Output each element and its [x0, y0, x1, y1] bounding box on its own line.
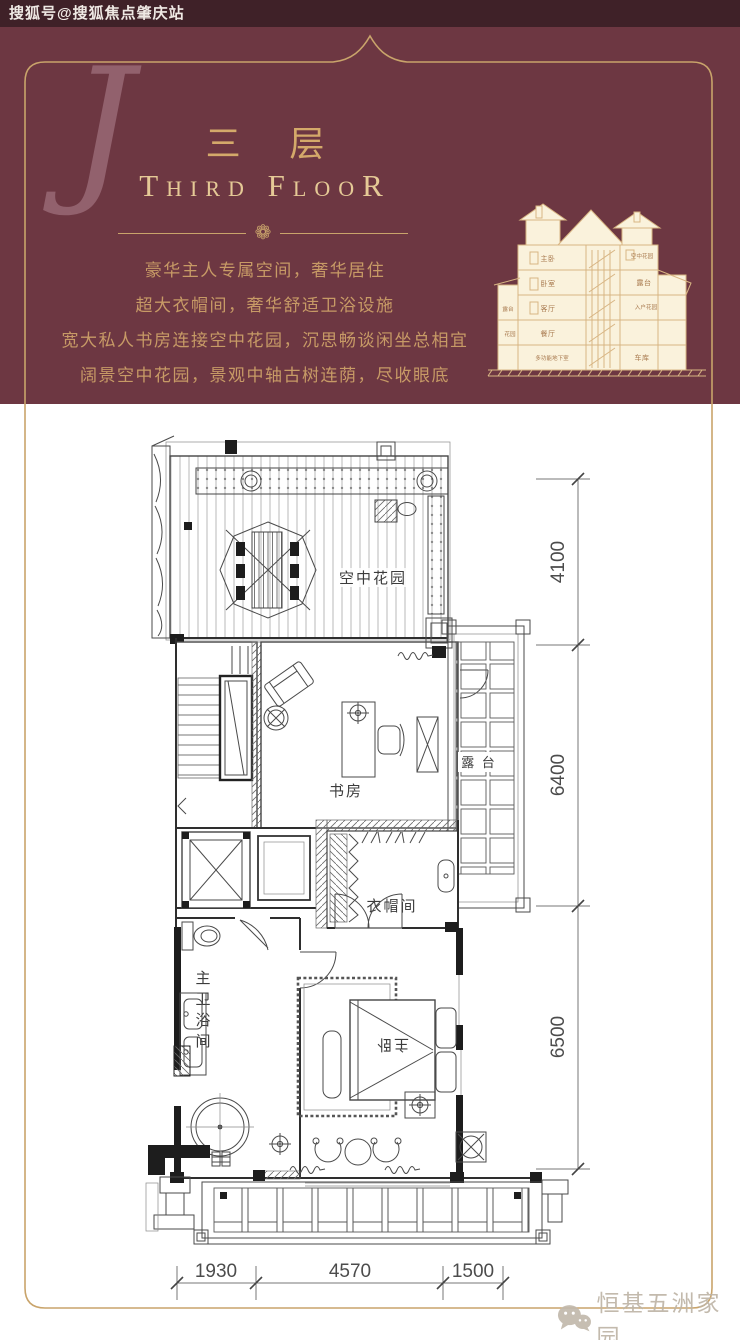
- description-line: 豪华主人专属空间，奢华居住: [28, 253, 502, 288]
- room-cloakroom: 衣帽间: [316, 820, 458, 932]
- floor-plan: 空中花园: [140, 430, 640, 1310]
- section-building: 主卧 空中花园 卧室 露台 客厅 入户花园 餐厅 多功能地下室 车库 露台 花园: [488, 204, 706, 376]
- watermark: 恒基五洲家园: [557, 1284, 740, 1340]
- flower-ornament-icon: ❁: [255, 223, 272, 243]
- section-label-entry-garden: 入户花园: [635, 303, 658, 311]
- bath-door: [240, 920, 268, 950]
- dim-6400: 6400: [548, 754, 569, 796]
- room-master-bath: 主卫浴间: [174, 918, 300, 1180]
- section-label-bedroom: 卧室: [541, 279, 556, 288]
- description-line: 阔景空中花园，景观中轴古树连荫，尽收眼底: [28, 358, 502, 393]
- bench: [323, 1031, 341, 1098]
- balcony: [146, 1145, 568, 1244]
- dim-6500: 6500: [548, 1016, 569, 1058]
- divider-line-left: [118, 233, 246, 234]
- divider-line-right: [280, 233, 408, 234]
- description-line: 宽大私人书房连接空中花园，沉思畅谈闲坐总相宜: [28, 323, 502, 358]
- rattan-chair: [264, 706, 288, 730]
- room-sky-garden: 空中花园: [152, 436, 456, 658]
- section-label-terrace: 露台: [637, 278, 652, 287]
- section-label-dining: 餐厅: [541, 329, 556, 338]
- room-label-sky-garden: 空中花园: [339, 570, 407, 587]
- room-label-master-bed: 主卧: [375, 1036, 409, 1053]
- description-line: 超大衣帽间，奢华舒适卫浴设施: [28, 288, 502, 323]
- floor-title-en: Third FlooR: [55, 170, 475, 201]
- title-divider: ❁: [118, 223, 408, 243]
- section-label-terrace-left: 露台: [502, 305, 514, 313]
- dimension-right: 4100 6400 6500: [536, 473, 590, 1175]
- dim-4570: 4570: [329, 1261, 371, 1282]
- toilet: [182, 922, 220, 950]
- section-label-basement: 多功能地下室: [535, 354, 569, 362]
- room-label-study: 书房: [329, 783, 363, 800]
- staircase: [176, 642, 261, 828]
- shaft: [258, 836, 310, 900]
- page: 搜狐号@搜狐焦点肇庆站 J 三 层 Third FlooR ❁ 豪华主人专属空间…: [0, 0, 740, 1340]
- building-section-illustration: 主卧 空中花园 卧室 露台 客厅 入户花园 餐厅 多功能地下室 车库 露台 花园: [486, 190, 708, 386]
- dimension-bottom: 1930 4570 1500: [171, 1261, 509, 1300]
- room-master-bedroom: 主卧: [170, 918, 542, 1186]
- dim-4100: 4100: [548, 541, 569, 583]
- floor-title-cn: 三 层: [55, 127, 475, 162]
- watermark-text: 恒基五洲家园: [596, 1284, 740, 1340]
- room-label-cloakroom: 衣帽间: [366, 898, 417, 915]
- room-label-terrace: 露 台: [461, 755, 497, 770]
- section-label-living: 客厅: [541, 304, 556, 313]
- section-label-sky-garden: 空中花园: [631, 252, 654, 260]
- section-label-garage: 车库: [635, 353, 650, 362]
- dim-1500: 1500: [452, 1261, 494, 1282]
- bedroom-door: [300, 952, 336, 988]
- wechat-icon: [557, 1303, 591, 1333]
- ac-unit: [456, 1132, 486, 1162]
- sohu-account-text: 搜狐号@搜狐焦点肇庆站: [9, 5, 185, 22]
- section-label-garden-left: 花园: [504, 330, 516, 338]
- sohu-topbar: 搜狐号@搜狐焦点肇庆站: [0, 0, 740, 27]
- header-section: J 三 层 Third FlooR ❁ 豪华主人专属空间，奢华居住 超大衣帽间，…: [0, 27, 740, 404]
- description-block: 豪华主人专属空间，奢华居住 超大衣帽间，奢华舒适卫浴设施 宽大私人书房连接空中花…: [28, 253, 502, 393]
- dim-1930: 1930: [195, 1261, 237, 1282]
- side-table: [345, 1139, 371, 1165]
- section-label-master: 主卧: [541, 254, 556, 263]
